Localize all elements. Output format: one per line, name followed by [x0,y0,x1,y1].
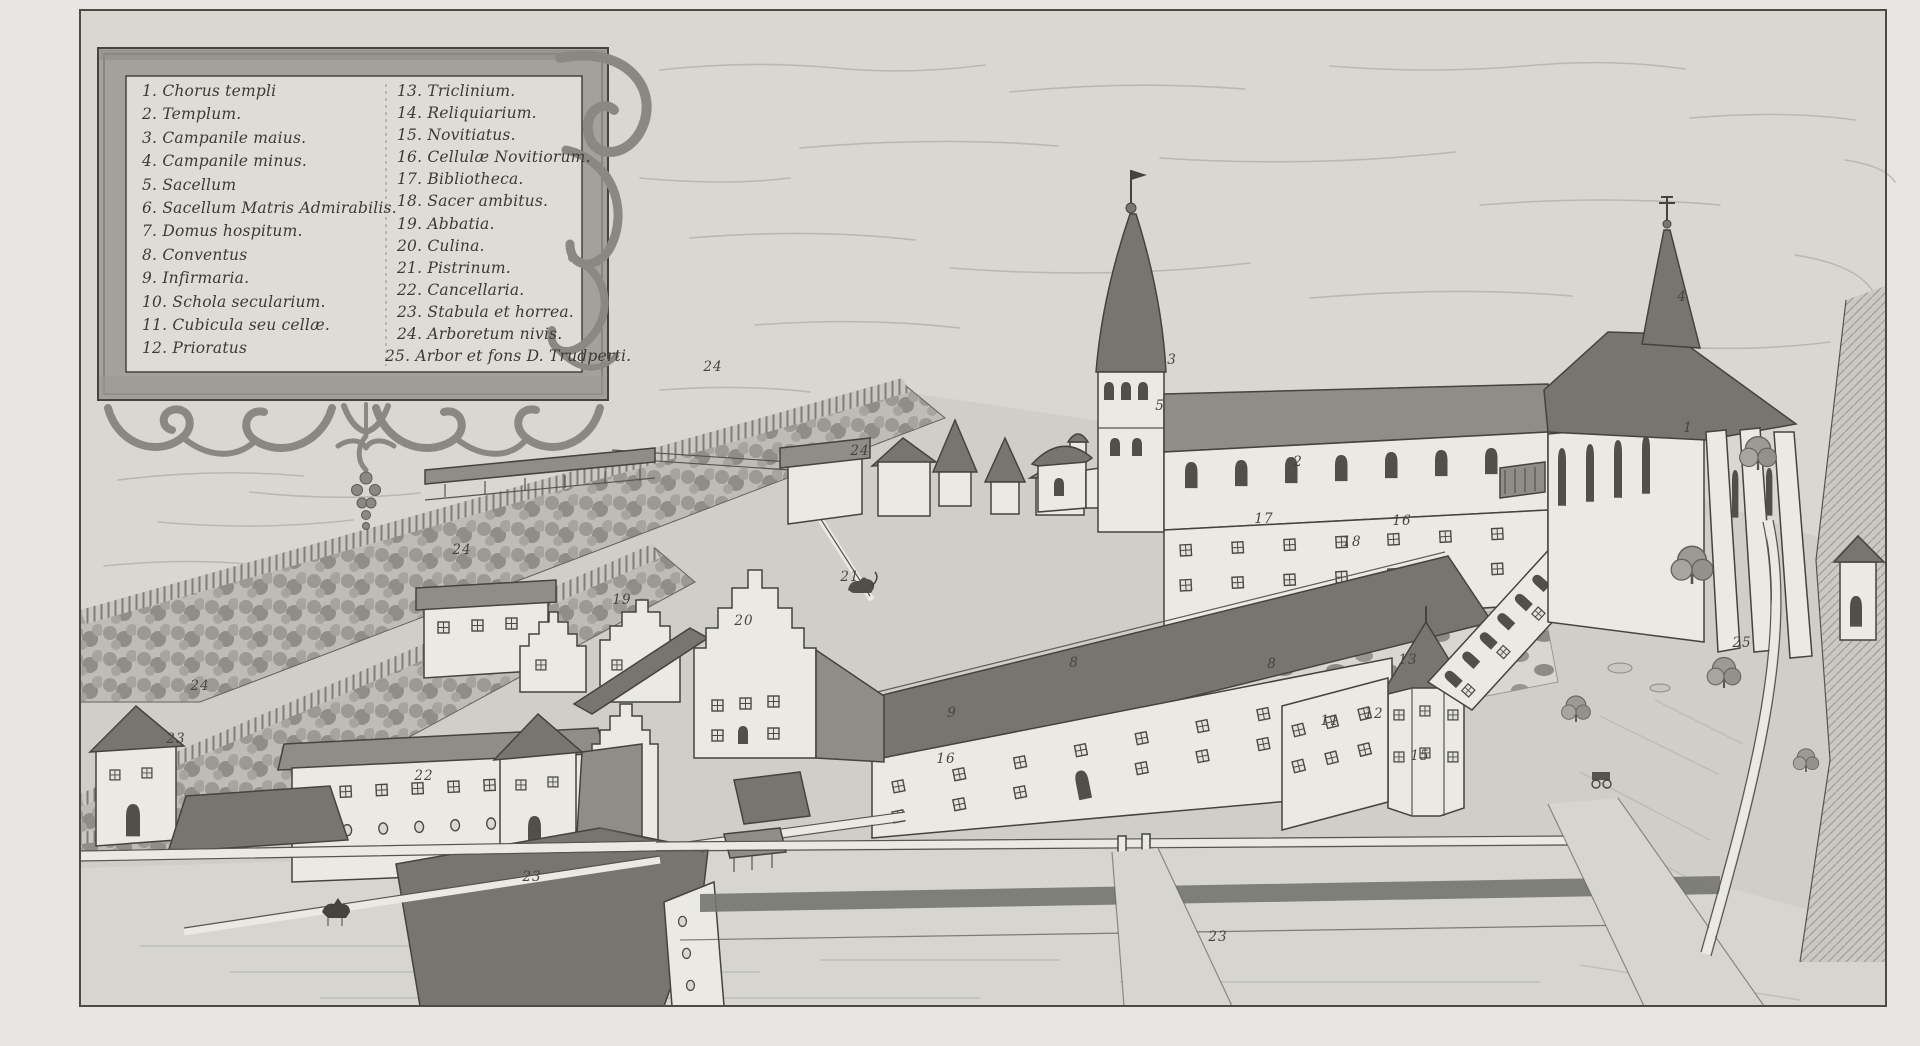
legend-cartouche-frame [98,48,608,400]
church-nave-2 [1164,384,1548,530]
chapel-5 [1032,446,1100,512]
engraving-page: 1. Chorus templi2. Templum.3. Campanile … [0,0,1920,1046]
monastery-drawing [0,0,1920,1046]
